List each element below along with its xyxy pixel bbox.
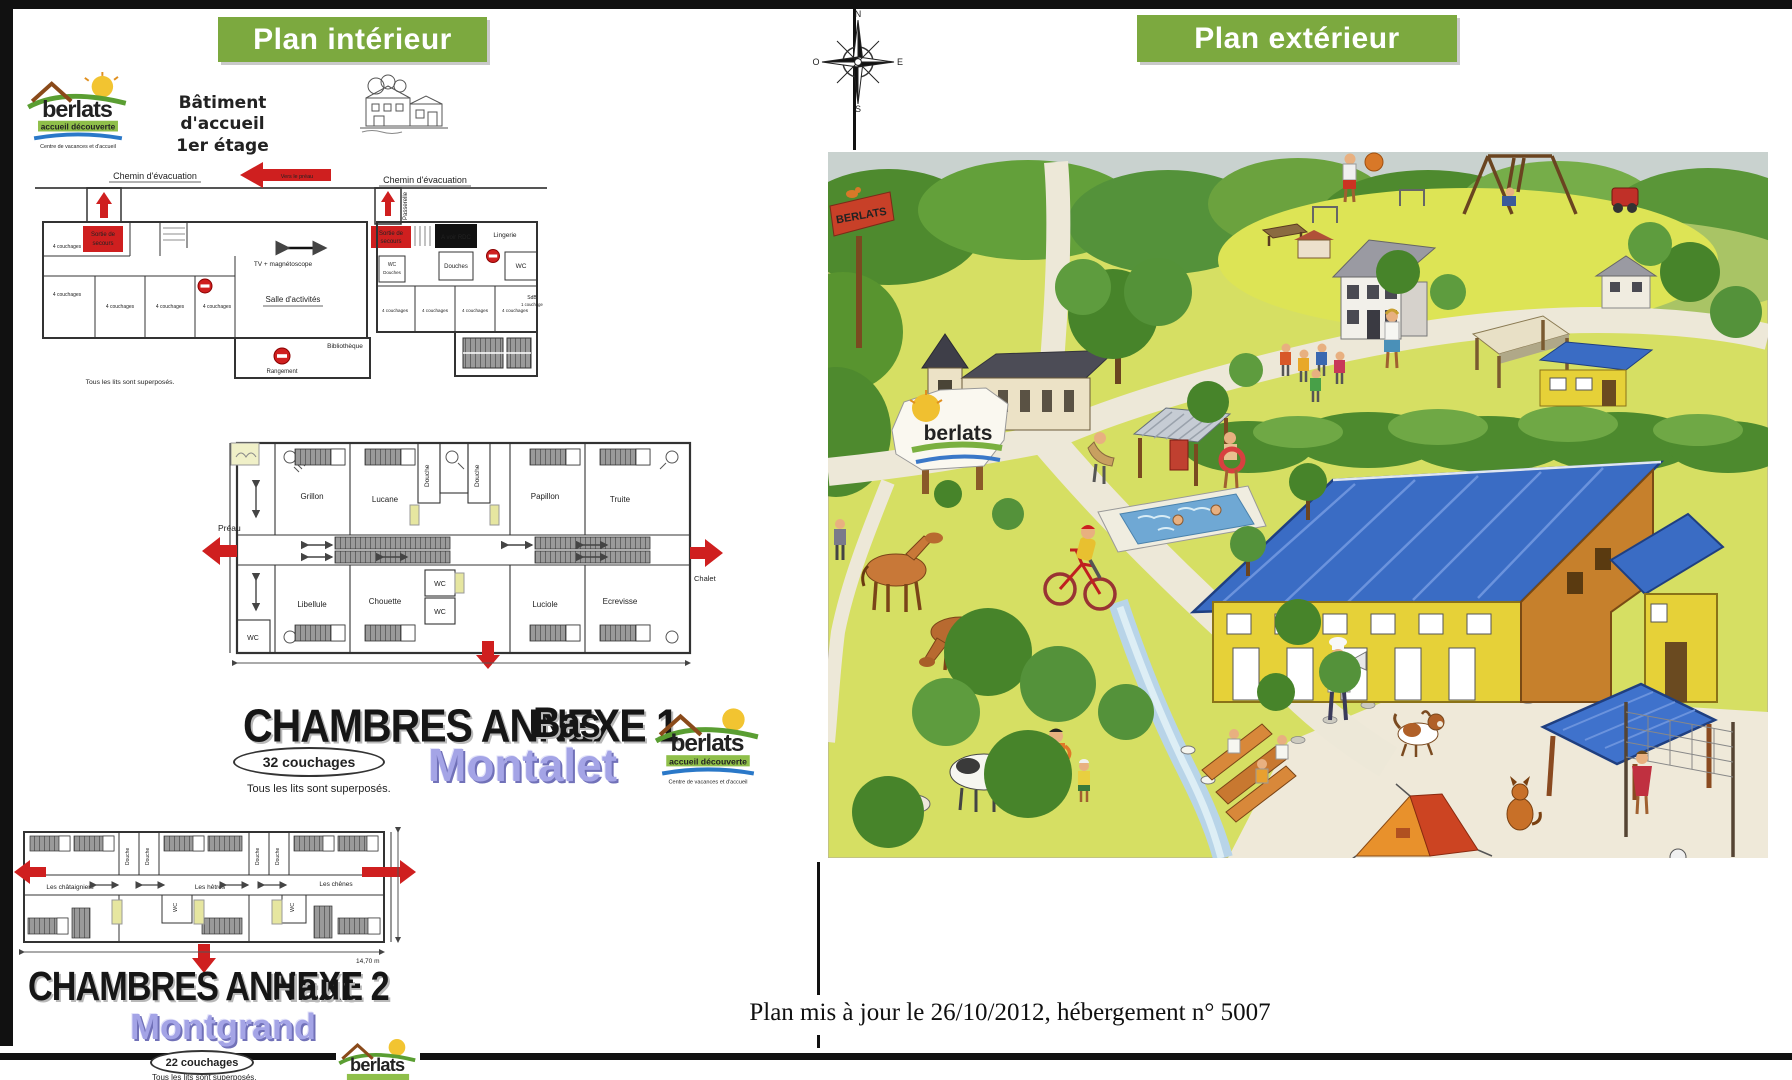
room-couchages-b: 4 couchages bbox=[53, 292, 82, 298]
evac-right-label: Chemin d'évacuation bbox=[383, 175, 467, 185]
berlats-logo-top: berlats accueil découverte Centre de vac… bbox=[24, 72, 132, 150]
annexe1-douche-1: Douche bbox=[424, 464, 431, 487]
room-couchages-g: 4 couchages bbox=[422, 308, 449, 313]
room-chouette: Chouette bbox=[369, 597, 402, 606]
annexe1-wc-1: WC bbox=[247, 635, 259, 642]
floorplan-annexe1: Douche Douche Grillon Lucane Pa bbox=[200, 425, 725, 670]
annexe1-capacity-label: 32 couchages bbox=[263, 754, 356, 770]
center-divider-dash bbox=[817, 1035, 820, 1048]
sortie-secours-right-1: Sortie de bbox=[379, 231, 404, 237]
banner-plan-exterieur: Plan extérieur bbox=[1137, 15, 1457, 62]
bottom-border bbox=[0, 1053, 1792, 1060]
compass-west: O bbox=[812, 57, 819, 67]
logo-tagline: accueil découverte bbox=[669, 756, 747, 766]
sortie-secours-right-2: secours bbox=[380, 239, 401, 245]
room-couchages-h: 4 couchages bbox=[462, 308, 489, 313]
sdb-couchage-label: 1 couchage bbox=[521, 302, 543, 307]
salle-label: Salle d'activités bbox=[266, 295, 321, 304]
annexe2-wc-2: WC bbox=[290, 903, 296, 912]
vers-preau-arrow: Vers le préau bbox=[240, 162, 331, 188]
annexe2-wc-1: WC bbox=[173, 903, 179, 912]
logo-subtitle: Centre de vacances et d'accueil bbox=[668, 780, 747, 786]
annexe1-capacity: 32 couchages bbox=[233, 747, 385, 777]
banner-left-label: Plan intérieur bbox=[253, 23, 452, 57]
logo-wordmark: berlats bbox=[670, 730, 743, 757]
sortie-secours-left-2: secours bbox=[92, 241, 113, 247]
room-libellule: Libellule bbox=[297, 600, 327, 609]
accueil-title-line2: 1er étage bbox=[140, 136, 305, 157]
logo-subtitle: Centre de vacances et d'accueil bbox=[40, 144, 116, 150]
wc-douche-label-2: Douches bbox=[383, 270, 402, 275]
annexe2-douche-1: Douche bbox=[125, 848, 131, 865]
preau-label: Préau bbox=[218, 523, 241, 533]
tv-label: TV + magnétoscope bbox=[254, 261, 313, 268]
wc-douche-label-1: WC bbox=[388, 262, 397, 268]
annexe2-building-name: Montgrand bbox=[130, 1006, 316, 1048]
douches-label: Douches bbox=[444, 264, 468, 270]
annexe2-room-2: Les hêtres bbox=[195, 884, 226, 891]
footer-update-note: Plan mis à jour le 26/10/2012, hébergeme… bbox=[600, 999, 1420, 1027]
chalet-label: Chalet bbox=[694, 574, 717, 583]
accueil-title-line1: Bâtiment d'accueil bbox=[140, 93, 305, 136]
annexe2-douche-4: Douche bbox=[275, 848, 281, 865]
passerelle-label: Passerelle bbox=[403, 191, 409, 220]
annexe2-douche-2: Douche bbox=[145, 848, 151, 865]
sdb-label: SdB bbox=[527, 295, 537, 301]
annexe2-capacity: 22 couchages bbox=[150, 1050, 254, 1075]
lingerie-label: Lingerie bbox=[493, 232, 517, 239]
room-couchages-i: 4 couchages bbox=[502, 308, 529, 313]
annexe2-douche-3: Douche bbox=[255, 848, 261, 865]
annexe2-room-3: Les chênes bbox=[319, 881, 353, 888]
bibliotheque-label: Bibliothèque bbox=[327, 343, 363, 350]
compass-north: N bbox=[855, 9, 862, 19]
accueil-title: Bâtiment d'accueil 1er étage bbox=[140, 93, 305, 157]
berlats-logo-middle: berlats accueil découverte Centre de vac… bbox=[652, 700, 764, 790]
logo-wordmark: berlats bbox=[42, 96, 113, 122]
room-couchages-f: 4 couchages bbox=[382, 308, 409, 313]
evac-left-label: Chemin d'évacuation bbox=[113, 171, 197, 181]
annexe2-beds-note: Tous les lits sont superposés. bbox=[152, 1073, 257, 1080]
room-couchages-a: 4 couchages bbox=[53, 244, 82, 250]
banner-plan-interieur: Plan intérieur bbox=[218, 17, 487, 62]
a-voir-rdc-label: A voir RDC bbox=[441, 235, 471, 241]
plan-document-page: Plan intérieur Plan extérieur N S E O be… bbox=[0, 0, 1792, 1080]
logo-tagline: accueil découverte bbox=[41, 123, 116, 132]
room-papillon: Papillon bbox=[531, 492, 559, 501]
room-couchages-c: 4 couchages bbox=[106, 304, 135, 310]
left-border bbox=[0, 0, 13, 1046]
room-couchages-d: 4 couchages bbox=[156, 304, 185, 310]
banner-right-label: Plan extérieur bbox=[1194, 22, 1399, 56]
room-truite: Truite bbox=[610, 495, 631, 504]
exterior-map-illustration: BERLATS berlats bbox=[828, 152, 1768, 858]
compass-south: S bbox=[855, 104, 861, 112]
annexe1-beds-note: Tous les lits sont superposés. bbox=[247, 783, 391, 795]
annexe1-wc-2: WC bbox=[434, 581, 446, 588]
berlats-logo-bottom: berlats bbox=[336, 1036, 420, 1080]
room-lucane: Lucane bbox=[372, 495, 399, 504]
compass-east: E bbox=[897, 57, 903, 67]
room-couchages-e: 4 couchages bbox=[203, 304, 232, 310]
room-luciole: Luciole bbox=[532, 600, 558, 609]
room-ecrevisse: Ecrevisse bbox=[603, 597, 638, 606]
room-grillon: Grillon bbox=[300, 492, 323, 501]
annexe2-capacity-label: 22 couchages bbox=[166, 1057, 239, 1069]
annexe2-level: Haut bbox=[272, 966, 356, 1010]
wc-right-label: WC bbox=[516, 263, 527, 270]
center-divider-bottom bbox=[817, 862, 820, 995]
logo-wordmark: berlats bbox=[350, 1055, 405, 1075]
building-sketch bbox=[358, 74, 450, 136]
annexe2-room-1: Les châtaigniers bbox=[46, 884, 94, 891]
accueil-beds-note: Tous les lits sont superposés. bbox=[86, 379, 175, 386]
sortie-secours-left-1: Sortie de bbox=[91, 232, 116, 238]
annexe1-douche-2: Douche bbox=[474, 464, 481, 487]
vers-preau-label: Vers le préau bbox=[281, 174, 313, 180]
compass-rose: N S E O bbox=[812, 8, 904, 112]
annexe1-building-name: Montalet bbox=[428, 738, 617, 792]
rangement-label: Rangement bbox=[266, 369, 297, 375]
floorplan-accueil: Chemin d'évacuation Chemin d'évacuation … bbox=[35, 156, 547, 404]
annexe1-wc-3: WC bbox=[434, 609, 446, 616]
